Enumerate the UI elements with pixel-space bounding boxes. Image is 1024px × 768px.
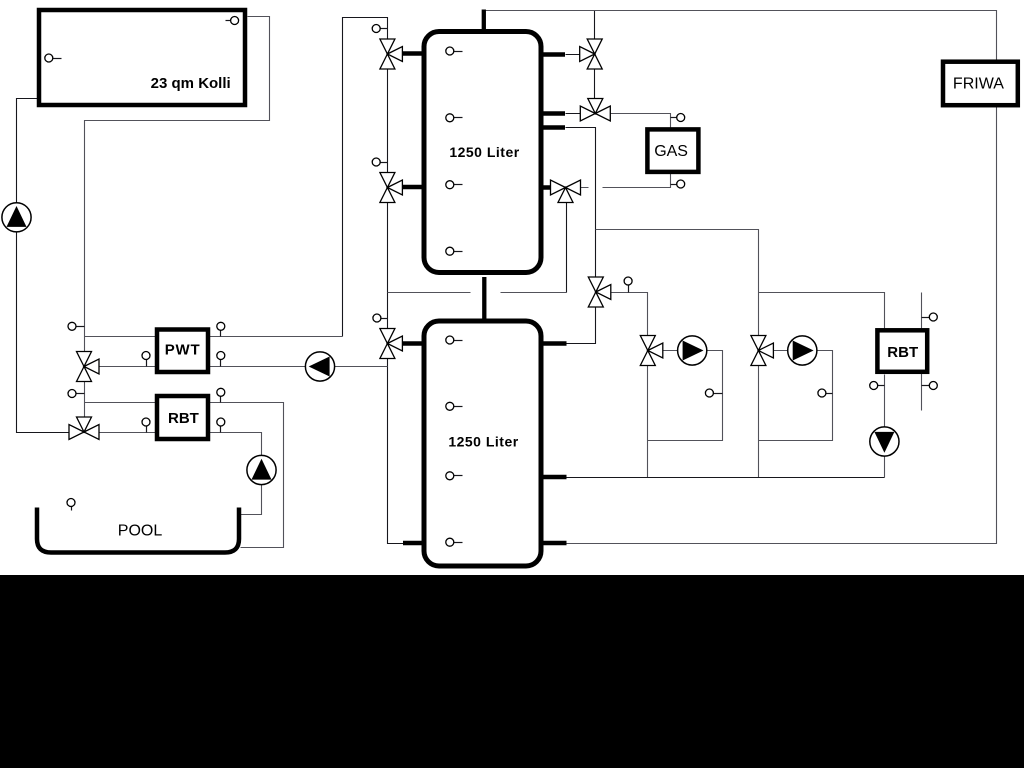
svg-text:1250 Liter: 1250 Liter (448, 433, 518, 449)
svg-text:23 qm Kolli: 23 qm Kolli (151, 75, 231, 92)
svg-text:RBT: RBT (887, 344, 918, 361)
svg-text:1250 Liter: 1250 Liter (449, 144, 519, 160)
svg-text:FRIWA: FRIWA (953, 76, 1004, 93)
svg-text:RBT: RBT (168, 410, 199, 427)
svg-text:POOL: POOL (118, 522, 163, 539)
svg-text:GAS: GAS (654, 143, 688, 160)
svg-text:PWT: PWT (165, 342, 201, 359)
